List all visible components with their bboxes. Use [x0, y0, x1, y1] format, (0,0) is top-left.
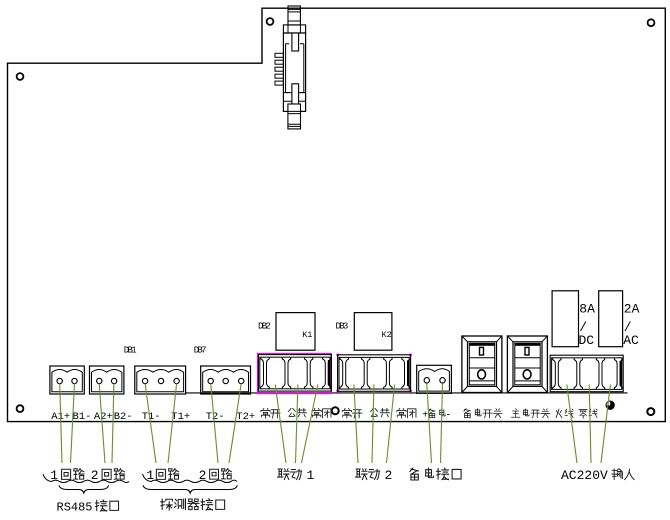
- svg-text:T2-: T2-: [206, 411, 225, 423]
- svg-text:DB7: DB7: [194, 346, 206, 356]
- svg-text:B2-: B2-: [114, 411, 133, 423]
- svg-text:8A: 8A: [579, 302, 595, 317]
- svg-text:K2: K2: [382, 330, 392, 340]
- svg-text:T1+: T1+: [171, 411, 190, 423]
- svg-text:AC: AC: [623, 333, 639, 348]
- svg-text:A2+: A2+: [94, 411, 113, 423]
- svg-text:-: -: [445, 411, 451, 422]
- svg-text:DB3: DB3: [336, 321, 348, 331]
- svg-text:T1-: T1-: [142, 411, 161, 423]
- svg-text:2A: 2A: [624, 302, 640, 317]
- svg-text:1: 1: [307, 468, 315, 483]
- svg-text:K1: K1: [302, 330, 312, 340]
- svg-text:2: 2: [385, 468, 393, 483]
- svg-text:RS485: RS485: [57, 501, 93, 515]
- svg-text:T2+: T2+: [236, 411, 255, 423]
- svg-text:DB2: DB2: [258, 321, 270, 331]
- svg-text:2: 2: [91, 468, 99, 483]
- svg-text:DB1: DB1: [124, 346, 136, 356]
- svg-text:DC: DC: [579, 333, 595, 348]
- svg-text:+: +: [422, 411, 428, 422]
- svg-text:B1-: B1-: [73, 411, 92, 423]
- svg-text:AC220V: AC220V: [561, 468, 608, 483]
